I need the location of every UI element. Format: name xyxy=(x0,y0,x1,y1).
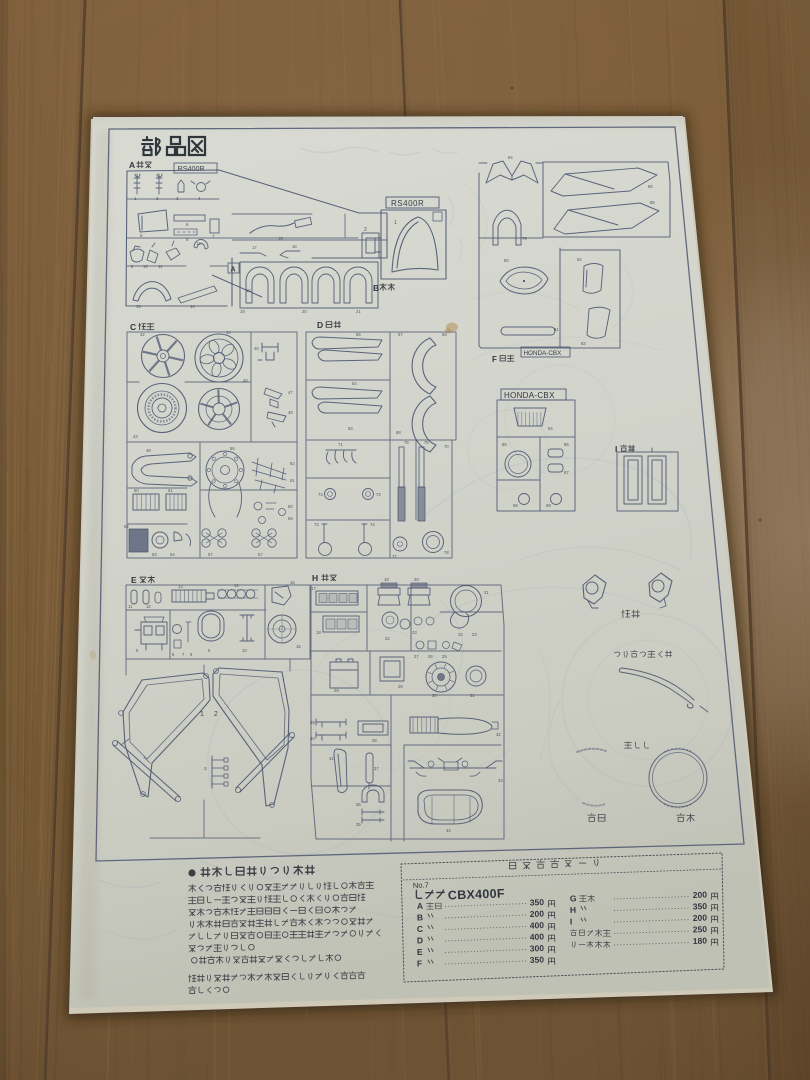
svg-text:43: 43 xyxy=(133,434,138,439)
svg-text:20: 20 xyxy=(414,577,419,582)
svg-text:B: B xyxy=(417,912,423,922)
svg-text:79: 79 xyxy=(522,236,527,241)
svg-text:F: F xyxy=(492,355,497,364)
svg-text:20: 20 xyxy=(302,309,307,314)
svg-text:13: 13 xyxy=(178,584,183,589)
svg-text:28: 28 xyxy=(398,684,403,689)
svg-text:49: 49 xyxy=(146,448,151,453)
svg-text:35: 35 xyxy=(356,822,361,827)
svg-text:26: 26 xyxy=(428,654,433,659)
svg-text:2: 2 xyxy=(214,711,218,718)
svg-text:27: 27 xyxy=(414,654,419,659)
svg-text:44: 44 xyxy=(226,330,231,335)
svg-text:350: 350 xyxy=(693,901,708,911)
svg-text:84: 84 xyxy=(508,155,513,160)
svg-text:C: C xyxy=(417,924,423,934)
svg-text:72: 72 xyxy=(376,492,381,497)
svg-text:73: 73 xyxy=(314,522,319,527)
svg-text:18: 18 xyxy=(292,244,297,249)
svg-text:10: 10 xyxy=(242,648,247,653)
svg-text:86: 86 xyxy=(648,184,653,189)
svg-text:C: C xyxy=(130,322,136,332)
svg-text:30: 30 xyxy=(432,693,437,698)
svg-text:40: 40 xyxy=(310,736,315,741)
svg-text:200: 200 xyxy=(530,909,545,919)
svg-text:60: 60 xyxy=(288,504,293,509)
svg-text:78: 78 xyxy=(444,550,449,555)
svg-text:14: 14 xyxy=(234,583,239,588)
svg-text:85: 85 xyxy=(502,442,507,447)
svg-text:F: F xyxy=(417,958,423,968)
svg-text:50: 50 xyxy=(134,488,139,493)
svg-text:250: 250 xyxy=(693,924,708,934)
svg-text:55: 55 xyxy=(230,446,235,451)
svg-text:RS400R: RS400R xyxy=(391,199,424,208)
svg-text:G: G xyxy=(570,893,577,903)
svg-text:I: I xyxy=(570,916,573,926)
svg-text:84: 84 xyxy=(548,426,553,431)
svg-text:E: E xyxy=(131,575,137,585)
svg-text:70: 70 xyxy=(444,444,449,449)
svg-text:350: 350 xyxy=(530,955,545,965)
svg-text:25: 25 xyxy=(442,654,447,659)
svg-text:87: 87 xyxy=(564,470,569,475)
svg-text:D: D xyxy=(317,320,323,330)
svg-text:A: A xyxy=(129,160,135,170)
svg-text:67: 67 xyxy=(398,332,403,337)
svg-text:12: 12 xyxy=(196,241,201,246)
svg-text:RS400R: RS400R xyxy=(178,164,205,173)
svg-text:59: 59 xyxy=(288,516,293,521)
svg-text:37: 37 xyxy=(374,766,379,771)
svg-text:45: 45 xyxy=(243,378,248,383)
svg-text:A: A xyxy=(231,267,236,274)
svg-text:400: 400 xyxy=(530,932,545,942)
svg-text:81: 81 xyxy=(554,327,559,332)
svg-text:A: A xyxy=(417,901,423,911)
svg-text:36: 36 xyxy=(356,802,361,807)
svg-text:89: 89 xyxy=(546,503,551,508)
svg-text:61: 61 xyxy=(290,478,295,483)
svg-text:75: 75 xyxy=(404,440,409,445)
svg-text:23: 23 xyxy=(472,632,477,637)
svg-text:54: 54 xyxy=(352,381,357,386)
svg-text:63: 63 xyxy=(348,426,353,431)
svg-text:HONDA-CBX: HONDA-CBX xyxy=(504,391,555,400)
svg-text:56: 56 xyxy=(356,332,361,337)
svg-text:No.7: No.7 xyxy=(413,880,429,890)
svg-text:D: D xyxy=(417,935,423,945)
svg-text:80: 80 xyxy=(504,258,509,263)
svg-text:350: 350 xyxy=(530,897,545,907)
svg-text:74: 74 xyxy=(370,522,375,527)
svg-text:16: 16 xyxy=(278,236,283,241)
svg-text:400: 400 xyxy=(530,920,545,930)
svg-text:17: 17 xyxy=(311,586,316,591)
svg-text:11: 11 xyxy=(128,604,133,609)
svg-text:77: 77 xyxy=(392,554,397,559)
svg-text:46: 46 xyxy=(254,346,259,351)
svg-text:54: 54 xyxy=(170,552,175,557)
svg-text:21: 21 xyxy=(356,309,361,314)
svg-text:22: 22 xyxy=(385,636,390,641)
svg-text:13: 13 xyxy=(136,304,141,309)
svg-text:21: 21 xyxy=(484,590,489,595)
svg-text:17: 17 xyxy=(252,245,257,250)
svg-text:48: 48 xyxy=(288,410,293,415)
svg-text:86: 86 xyxy=(564,442,569,447)
svg-text:300: 300 xyxy=(530,943,545,953)
svg-text:200: 200 xyxy=(693,913,708,923)
svg-text:E: E xyxy=(417,947,423,957)
svg-text:38: 38 xyxy=(372,738,377,743)
svg-text:1: 1 xyxy=(200,711,204,718)
svg-text:34: 34 xyxy=(446,828,451,833)
svg-text:B: B xyxy=(373,283,379,293)
svg-text:2: 2 xyxy=(364,227,367,233)
svg-text:85: 85 xyxy=(650,200,655,205)
svg-text:72: 72 xyxy=(318,492,323,497)
svg-text:12: 12 xyxy=(146,604,151,609)
svg-text:76: 76 xyxy=(424,440,429,445)
svg-text:68: 68 xyxy=(396,430,401,435)
svg-text:57: 57 xyxy=(258,552,263,557)
svg-text:11: 11 xyxy=(158,264,163,269)
svg-text:24: 24 xyxy=(458,632,463,637)
svg-text:88: 88 xyxy=(513,503,518,508)
svg-text:31: 31 xyxy=(470,693,475,698)
svg-text:14: 14 xyxy=(190,304,195,309)
svg-text:23: 23 xyxy=(412,630,417,635)
svg-text:53: 53 xyxy=(152,552,157,557)
svg-text:HONDA-CBX: HONDA-CBX xyxy=(524,350,563,357)
svg-text:200: 200 xyxy=(693,890,708,900)
svg-text:19: 19 xyxy=(240,309,245,314)
svg-text:39: 39 xyxy=(310,720,315,725)
svg-text:32: 32 xyxy=(496,732,501,737)
svg-text:10: 10 xyxy=(143,264,148,269)
svg-text:19: 19 xyxy=(384,577,389,582)
svg-text:57: 57 xyxy=(208,552,213,557)
svg-text:47: 47 xyxy=(288,390,293,395)
svg-text:51: 51 xyxy=(168,488,173,493)
svg-text:H: H xyxy=(312,573,318,583)
svg-text:71: 71 xyxy=(338,442,343,447)
svg-text:15: 15 xyxy=(296,644,301,649)
svg-text:18: 18 xyxy=(316,630,321,635)
svg-text:42: 42 xyxy=(140,332,145,337)
svg-text:180: 180 xyxy=(693,936,708,946)
svg-text:62: 62 xyxy=(290,461,295,466)
svg-text:29: 29 xyxy=(334,688,339,693)
svg-text:CBX400F: CBX400F xyxy=(448,887,506,903)
svg-text:15: 15 xyxy=(246,288,251,293)
svg-text:H: H xyxy=(570,905,576,915)
svg-text:16: 16 xyxy=(290,580,295,585)
svg-text:82: 82 xyxy=(577,257,582,262)
svg-text:33: 33 xyxy=(498,778,503,783)
svg-text:41: 41 xyxy=(329,756,334,761)
svg-text:52: 52 xyxy=(124,524,129,529)
svg-text:83: 83 xyxy=(581,341,586,346)
svg-text:1: 1 xyxy=(394,220,397,226)
